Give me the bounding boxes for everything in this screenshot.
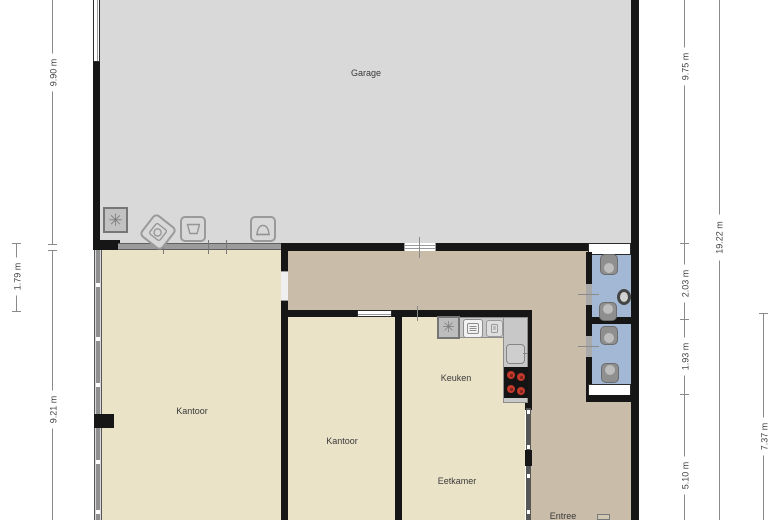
floor-plan: ✳ ✳ Garage Kantoor Kantoor Keuken Eetkam… [0, 0, 780, 520]
glass-pane-joint [527, 410, 530, 414]
hallway-top-wall-right [436, 243, 588, 251]
toilet-icon [599, 302, 617, 321]
toilet-icon [600, 326, 618, 345]
garage-hallway-door [404, 243, 436, 251]
door-frame-tick [578, 294, 599, 295]
door-icon [597, 514, 610, 520]
hallway-top-wall-left [283, 243, 404, 251]
dimension-label: 19.22 m [713, 215, 726, 261]
kantoor-middle-floor [288, 317, 395, 520]
room-label-garage: Garage [331, 67, 401, 79]
burner [517, 387, 525, 395]
extractor-fan-icon: ✳ [103, 207, 128, 233]
kantoor-hallway-door [281, 271, 288, 301]
window-pane-joint [96, 383, 100, 387]
dimension-tick [48, 250, 57, 251]
kantoor-middle-top-wall [283, 310, 357, 317]
dimension-label: 2.03 m [679, 265, 692, 303]
sink-icon [506, 344, 525, 364]
oven-icon [463, 319, 483, 338]
door-frame-tick [419, 237, 420, 258]
appliance-icon [486, 320, 503, 337]
dimension-line [52, 0, 53, 245]
dimension-tick [759, 313, 768, 314]
dimension-label: 9.21 m [47, 391, 60, 429]
burner [517, 373, 525, 381]
garage-kantoor-partition [118, 243, 283, 250]
window-pane-joint [96, 460, 100, 464]
dimension-label: 1.79 m [11, 258, 24, 296]
dimension-label: 9.90 m [47, 54, 60, 92]
bathroom-bottom-wall [586, 395, 633, 402]
fan-glyph: ✳ [442, 320, 455, 335]
glass-pane-joint [527, 445, 530, 449]
garage-left-wall [93, 62, 100, 247]
glass-pane-joint [527, 474, 530, 478]
dimension-tick [680, 319, 689, 320]
dimension-tick [680, 394, 689, 395]
washbasin-icon [617, 289, 631, 305]
door-frame-tick [578, 346, 599, 347]
extractor-fan-icon: ✳ [437, 316, 460, 339]
exterior-right-wall [631, 0, 639, 520]
room-label-kantoor-left: Kantoor [157, 405, 227, 417]
dimension-tick [12, 243, 21, 244]
partition-tick [226, 240, 227, 254]
kantoor-left-window-wall [94, 250, 102, 520]
keuken-left-wall [395, 310, 402, 520]
window-pane-joint [96, 510, 100, 514]
garage-floor [96, 0, 633, 247]
hallway-floor [285, 243, 631, 315]
room-label-entree: Entree [528, 510, 598, 520]
laundry-tub-icon [180, 216, 206, 242]
window-pane-joint [96, 283, 100, 287]
dimension-label: 9.75 m [679, 48, 692, 86]
dimension-label: 5.10 m [679, 457, 692, 495]
dimension-tick [48, 244, 57, 245]
dimension-tick [680, 243, 689, 244]
toilet-icon [601, 363, 619, 383]
room-label-keuken: Keuken [421, 372, 491, 384]
dimension-label: 7.37 m [758, 418, 771, 456]
toilet-icon [600, 254, 618, 275]
eetkamer-entree-glass-wall [526, 408, 531, 520]
kantoor-middle-window [357, 310, 392, 317]
burner [507, 371, 515, 379]
room-label-kantoor-middle: Kantoor [307, 435, 377, 447]
fan-glyph: ✳ [108, 212, 122, 229]
glass-wall-post [525, 450, 532, 466]
facade-pier [94, 414, 114, 428]
kantoor-left-floor [100, 247, 285, 520]
partition-tick [208, 240, 209, 254]
keuken-top-wall [392, 310, 532, 317]
garage-left-window [93, 0, 100, 62]
wall-tick [417, 306, 418, 321]
dimension-label: 1.93 m [679, 338, 692, 376]
cooktop-icon [504, 367, 528, 398]
dimension-line [52, 250, 53, 520]
room-label-eetkamer: Eetkamer [422, 475, 492, 487]
burner [507, 385, 515, 393]
dimension-line [763, 313, 764, 520]
window-pane-joint [96, 337, 100, 341]
garage-bottom-left-cap [93, 240, 120, 250]
hood-icon [250, 216, 276, 242]
dimension-tick [12, 311, 21, 312]
